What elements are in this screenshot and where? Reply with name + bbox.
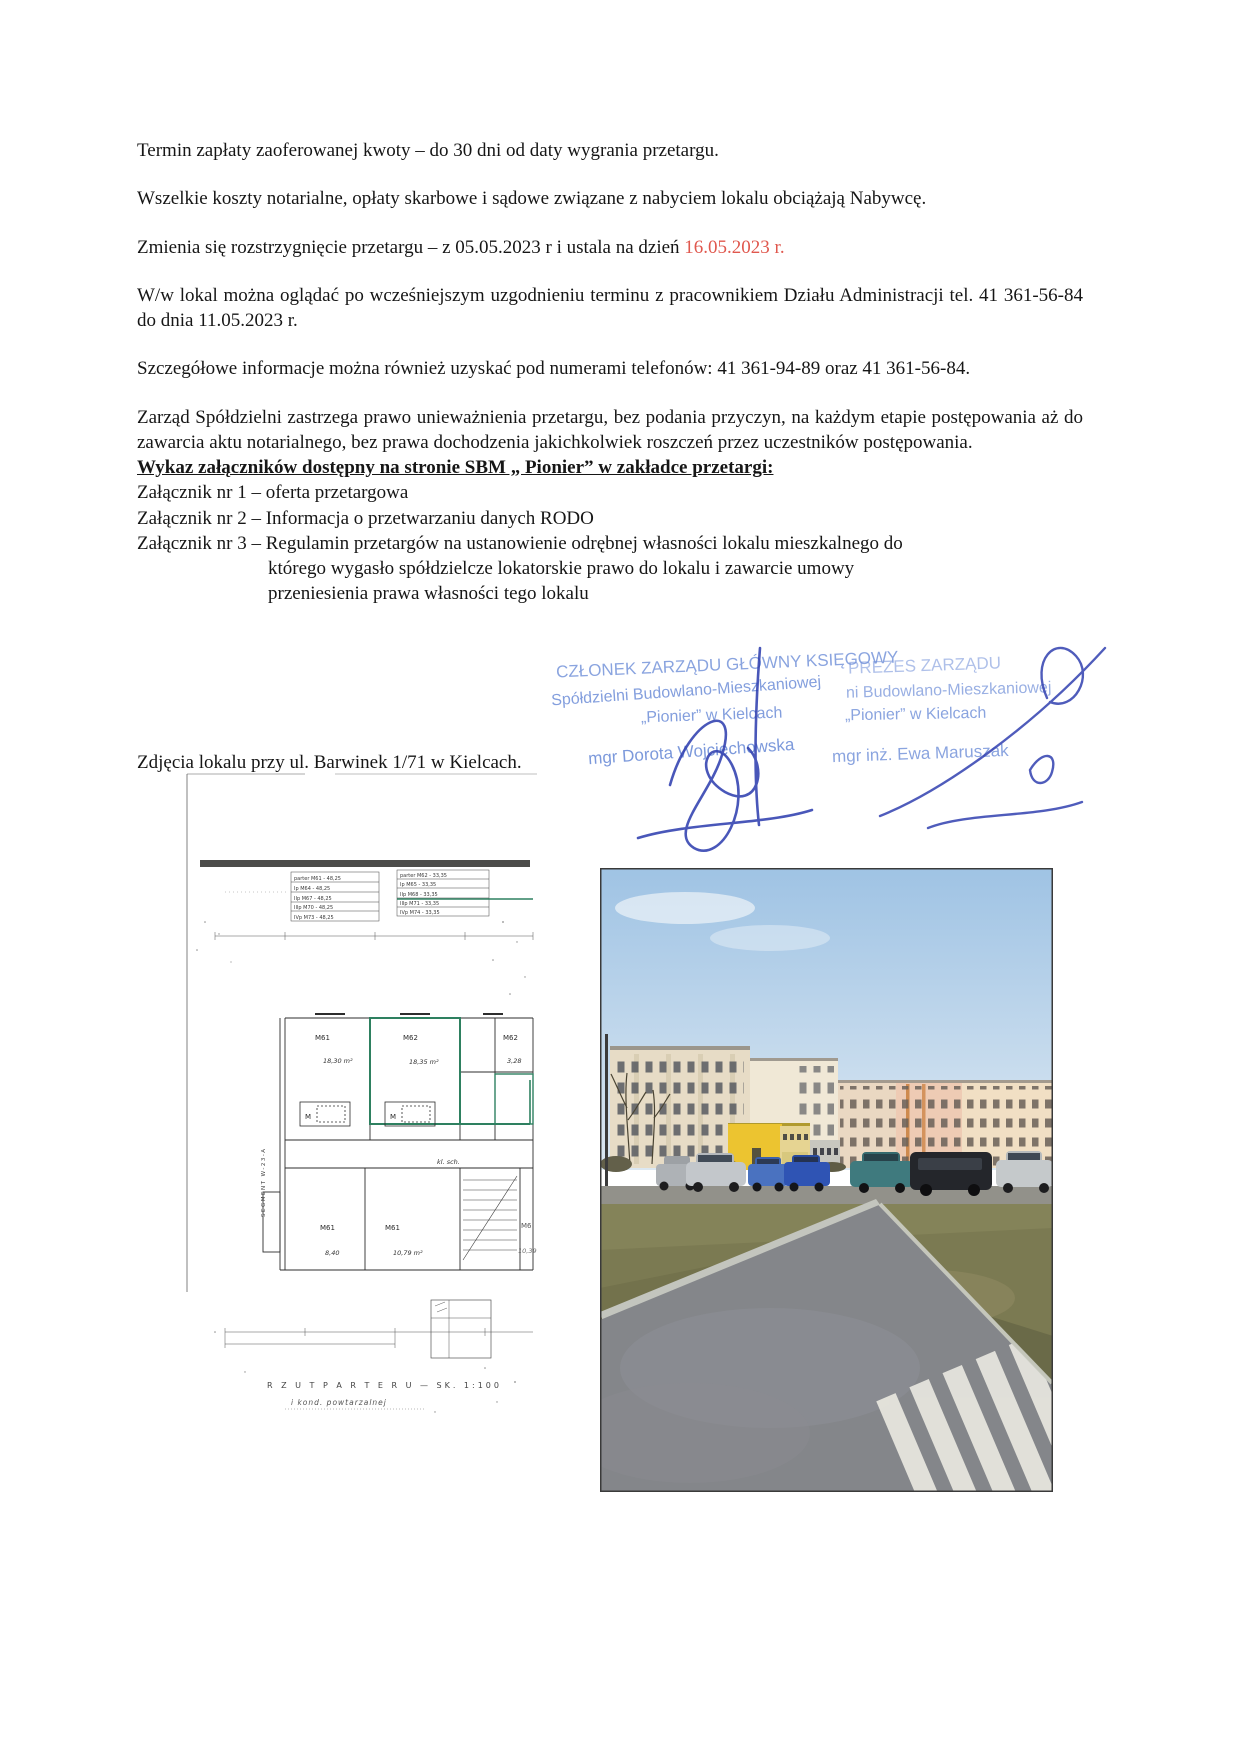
attachment-item-3-line2: którego wygasło spółdzielcze lokatorskie…	[268, 556, 1083, 581]
staircase-label: kl. sch.	[437, 1158, 460, 1166]
document-body: Termin zapłaty zaoferowanej kwoty – do 3…	[137, 138, 1083, 607]
car-black-suv	[910, 1152, 992, 1196]
new-auction-date: 16.05.2023 r.	[684, 237, 784, 258]
stamp-left-city: „Pionier” w Kielcach	[641, 705, 783, 728]
table-row: IIp M68 - 33,35	[400, 892, 438, 898]
table-row: IIIp M70 - 48,25	[294, 905, 333, 911]
plan-caption-subtitle: i kond. powtarzalnej	[291, 1398, 387, 1407]
attachment-item-3-line1: Załącznik nr 3 – Regulamin przetargów na…	[137, 531, 1083, 556]
table-row: Ip M64 - 48,25	[294, 886, 330, 892]
table-row: IVp M74 - 33,35	[400, 910, 440, 916]
stamp-left-name: mgr Dorota Wojciechowska	[588, 735, 795, 769]
room-area: 10,39	[518, 1247, 537, 1255]
room-area: 18,30 m²	[323, 1057, 353, 1065]
paragraph-notary-costs: Wszelkie koszty notarialne, opłaty skarb…	[137, 186, 1083, 211]
plan-staircase	[463, 1176, 517, 1260]
photos-caption: Zdjęcia lokalu przy ul. Barwinek 1/71 w …	[137, 752, 522, 774]
stamp-right-city: „Pionier” w Kielcach	[845, 705, 987, 725]
paragraph-date-change: Zmienia się rozstrzygnięcie przetargu – …	[137, 235, 1083, 260]
room-name: M62	[503, 1034, 518, 1042]
room-area: 10,79 m²	[393, 1249, 423, 1257]
table-row: Ip M65 - 33,35	[400, 882, 436, 888]
document-page: Termin zapłaty zaoferowanej kwoty – do 3…	[0, 0, 1240, 1754]
table-row: IVp M73 - 48,25	[294, 915, 334, 921]
table-row: IIIp M71 - 33,35	[400, 901, 439, 907]
scan-noise	[196, 921, 525, 1413]
segment-label: SEGMENT W-23-A	[261, 1148, 267, 1218]
attachment-item-2: Załącznik nr 2 – Informacja o przetwarza…	[137, 506, 1083, 531]
plan-caption-title: R Z U T P A R T E R U — SK. 1:100	[267, 1381, 502, 1390]
plan-table-left-rows: parter M61 - 48,25 Ip M64 - 48,25 IIp M6…	[294, 876, 341, 921]
room-area: 8,40	[325, 1249, 339, 1257]
paragraph-payment-term: Termin zapłaty zaoferowanej kwoty – do 3…	[137, 138, 1083, 163]
attachment-item-1: Załącznik nr 1 – oferta przetargowa	[137, 480, 1083, 505]
room-name: M61	[315, 1034, 330, 1042]
scan-edges	[187, 774, 537, 1292]
paragraph-viewing-info: W/w lokal można oglądać po wcześniejszym…	[137, 283, 1083, 334]
plan-m-boxes	[300, 1102, 435, 1126]
floorplan-image: parter M61 - 48,25 Ip M64 - 48,25 IIp M6…	[185, 772, 537, 1422]
plan-bottom-dimensions	[225, 1300, 533, 1358]
stamp-right-org: ni Budowlano-Mieszkaniowej	[846, 679, 1052, 702]
m-box-label: M	[305, 1113, 311, 1121]
plan-table-right-rows: parter M62 - 33,35 Ip M65 - 33,35 IIp M6…	[400, 873, 447, 916]
photo-svg	[600, 868, 1053, 1492]
table-row: parter M62 - 33,35	[400, 873, 447, 879]
date-change-prefix: Zmienia się rozstrzygnięcie przetargu – …	[137, 237, 684, 258]
room-name: M61	[385, 1224, 400, 1232]
stamp-right-name: mgr inż. Ewa Maruszak	[832, 741, 1009, 767]
property-photo	[600, 868, 1053, 1492]
table-row: parter M61 - 48,25	[294, 876, 341, 882]
plan-top-band	[200, 860, 530, 867]
paragraph-phone-info: Szczegółowe informacje można również uzy…	[137, 356, 1083, 381]
room-name: M6	[521, 1222, 532, 1230]
table-row: IIp M67 - 48,25	[294, 896, 332, 902]
room-area: 3,28	[507, 1057, 521, 1065]
stamp-right-title: PREZES ZARZĄDU	[848, 653, 1002, 678]
room-name: M61	[320, 1224, 335, 1232]
paragraph-board-reservation: Zarząd Spółdzielni zastrzega prawo uniew…	[137, 405, 1083, 456]
plan-dimension-line	[215, 932, 533, 940]
attachments-heading: Wykaz załączników dostępny na stronie SB…	[137, 455, 1083, 480]
m-box-label: M	[390, 1113, 396, 1121]
floorplan-svg: parter M61 - 48,25 Ip M64 - 48,25 IIp M6…	[185, 772, 537, 1422]
attachment-item-3-line3: przeniesienia prawa własności tego lokal…	[268, 581, 1083, 606]
room-name: M62	[403, 1034, 418, 1042]
room-area: 18,35 m²	[409, 1058, 439, 1066]
